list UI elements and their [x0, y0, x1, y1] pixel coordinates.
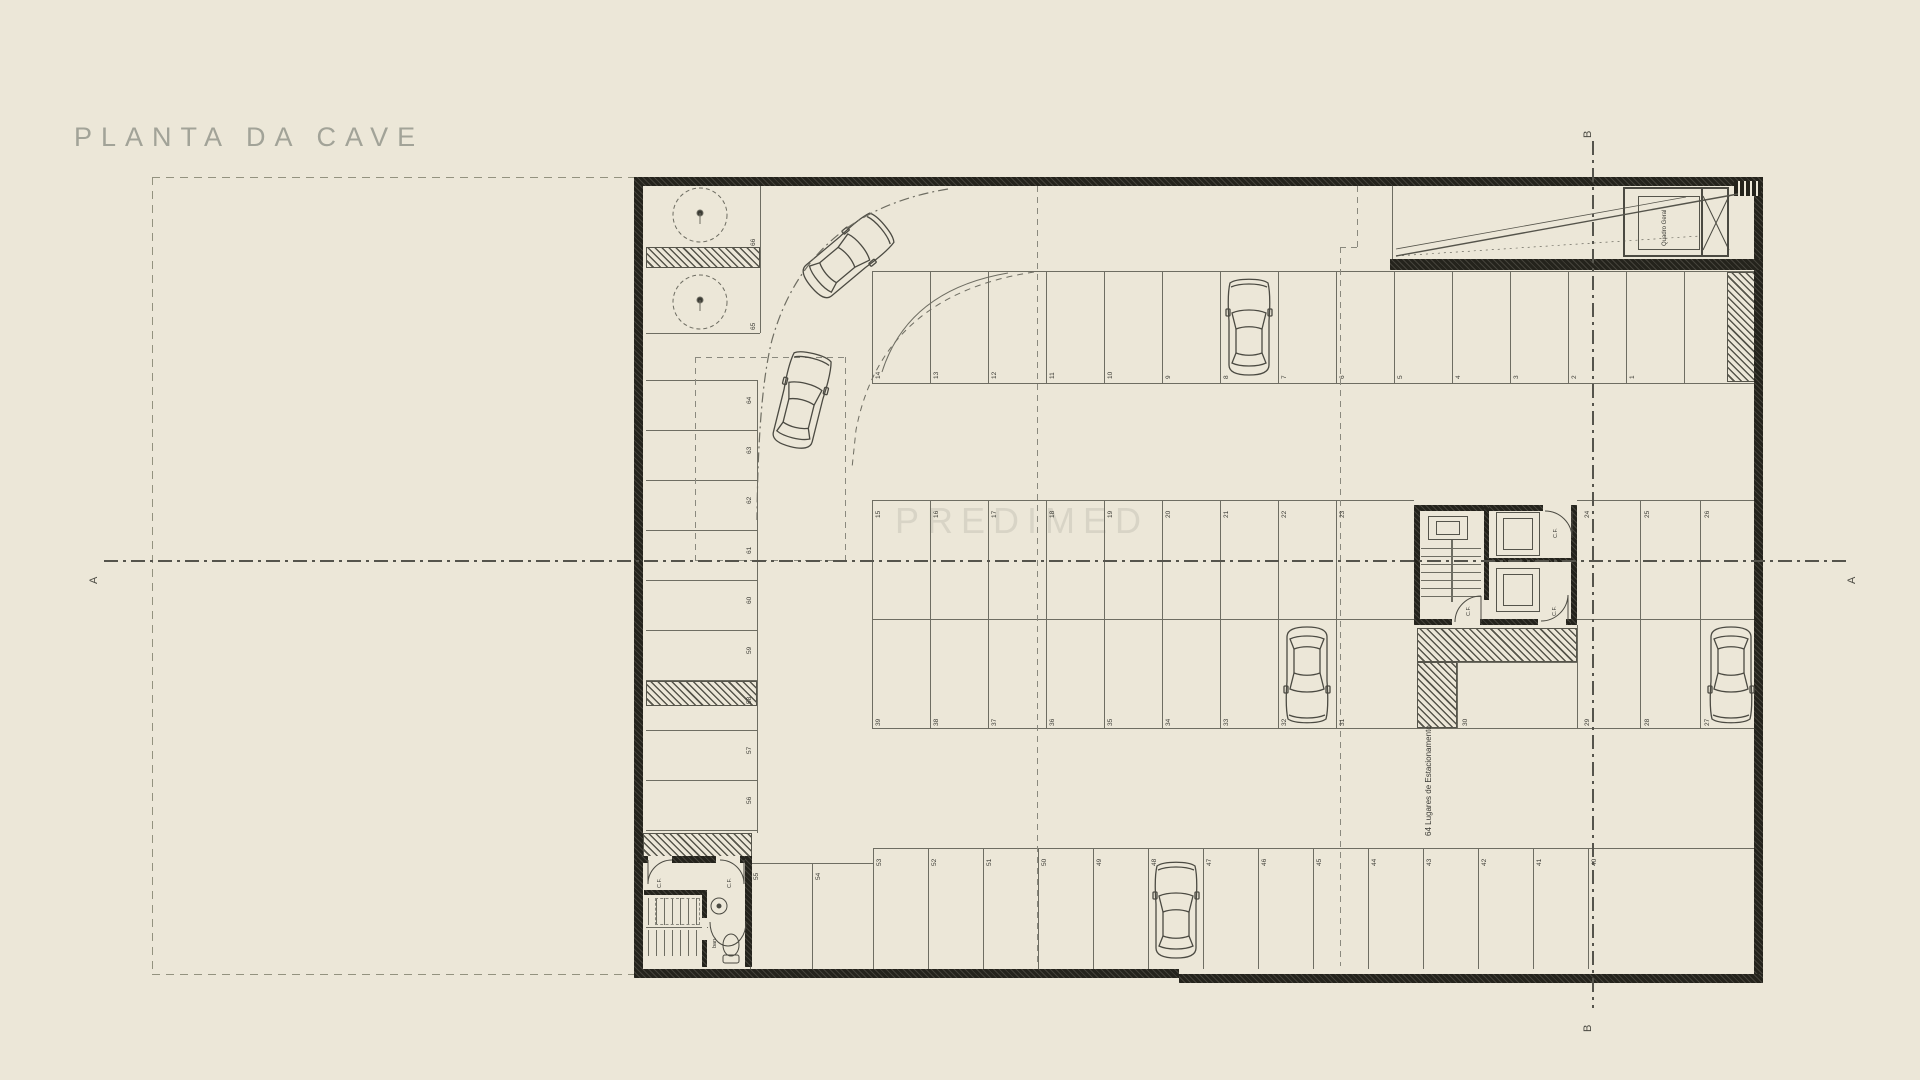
stall-divider [812, 863, 813, 969]
room-stair-tread [664, 930, 665, 956]
parking-stall-number: 50 [1041, 859, 1049, 866]
stall-divider [1038, 848, 1039, 969]
room-stair-tread [648, 930, 649, 956]
section-line-b [1592, 141, 1594, 1008]
bath-label: ban. [712, 937, 719, 948]
parking-stall-number: 59 [746, 647, 754, 654]
parking-stall-number: 46 [1261, 859, 1269, 866]
stall-divider [646, 380, 757, 381]
stall-divider [646, 480, 757, 481]
hatch-strip-stair-room [643, 833, 752, 857]
core-duct [1436, 521, 1460, 535]
fire-door-label: C.F. [727, 878, 734, 888]
stall-divider [1278, 500, 1279, 728]
parking-stall-number: 18 [1049, 511, 1057, 518]
parking-stall-number: 36 [1049, 719, 1057, 726]
parking-stall-number: 25 [1644, 511, 1652, 518]
stall-divider [872, 271, 873, 383]
stall-divider [873, 848, 874, 969]
parking-stall-number: 27 [1704, 719, 1712, 726]
parking-stall-number: 7 [1281, 375, 1289, 379]
entrance-envelope [695, 357, 845, 358]
room-stair-tread [648, 898, 649, 925]
room-stair-tread [656, 930, 657, 956]
core-door-gap [1538, 619, 1566, 625]
stall-divider [1684, 271, 1685, 383]
parking-stall-number: 55 [753, 873, 761, 880]
stall-edge [872, 271, 1757, 272]
stall-divider [1162, 500, 1163, 728]
parking-stall-number: 65 [750, 323, 758, 330]
parking-stall-number: 35 [1107, 719, 1115, 726]
parking-stall-number: 13 [933, 372, 941, 379]
stall-divider [646, 830, 757, 831]
parking-stall-number: 63 [746, 447, 754, 454]
stall-edge [1577, 500, 1763, 501]
stall-divider [1046, 271, 1047, 383]
stall-divider [1258, 848, 1259, 969]
parking-stall-number: 30 [1462, 719, 1470, 726]
room-inner-wall [644, 890, 706, 895]
parking-stall-number: 26 [1704, 511, 1712, 518]
parking-stall-number: 49 [1096, 859, 1104, 866]
room-stair-rail [646, 927, 708, 928]
parking-stall-number: 3 [1513, 375, 1521, 379]
parking-stall-number: 11 [1049, 372, 1057, 379]
elevator-car-inner [1503, 518, 1533, 550]
parking-stall-number: 61 [746, 547, 754, 554]
stall-divider [1568, 271, 1569, 383]
stall-divider [928, 848, 929, 969]
hatch-wedge-top-right [1727, 272, 1757, 382]
parking-stall-number: 28 [1644, 719, 1652, 726]
section-label-a-left: A [88, 577, 100, 584]
parking-stall-number: 12 [991, 372, 999, 379]
hatch-strip-left [646, 681, 757, 706]
ramp-corridor-wall [1390, 259, 1763, 270]
stall-divider [646, 780, 757, 781]
parking-stall-number: 16 [933, 511, 941, 518]
projection-line [1340, 247, 1358, 248]
stall-divider [988, 500, 989, 728]
parking-stall-number: 8 [1223, 375, 1231, 379]
room-stair-tread [688, 930, 689, 956]
stall-divider [1220, 271, 1221, 383]
stall-divider [930, 271, 931, 383]
stall-divider [1313, 848, 1314, 969]
parking-stall-number: 62 [746, 497, 754, 504]
parking-stall-number: 37 [991, 719, 999, 726]
stall-edge [1577, 619, 1763, 620]
hatch-below-core [1417, 662, 1457, 728]
parking-stall-number: 58 [746, 697, 754, 704]
fire-door-label: C.F. [1466, 606, 1473, 616]
stall-divider [1203, 848, 1204, 969]
stall-divider [1148, 848, 1149, 969]
stall-divider [1588, 848, 1589, 969]
stall-divider [1577, 625, 1578, 728]
section-label-b-bottom: B [1582, 1025, 1594, 1032]
parking-stall-number: 24 [1584, 511, 1592, 518]
entrance-envelope [695, 357, 696, 560]
room-door-gap [648, 856, 672, 863]
stall-divider [1093, 848, 1094, 969]
watermark: PREDIMED [895, 500, 1149, 542]
core-wall [1571, 505, 1577, 625]
stall-divider [1640, 500, 1641, 728]
room-door-gap [702, 918, 707, 940]
parking-stall-number: 38 [933, 719, 941, 726]
projection-line [1357, 186, 1358, 247]
stall-divider [1104, 271, 1105, 383]
stall-edge [757, 380, 758, 833]
hatch-below-core [1417, 628, 1577, 662]
parking-stall-number: 33 [1223, 719, 1231, 726]
parking-stall-number: 23 [1339, 511, 1347, 518]
stall-divider [1533, 848, 1534, 969]
stall-divider [646, 333, 760, 334]
parking-stall-number: 32 [1281, 719, 1289, 726]
stall-divider [1046, 500, 1047, 728]
elevator-car-inner [1503, 574, 1533, 606]
parking-stall-number: 19 [1107, 511, 1115, 518]
ramp-corridor-edge [1392, 186, 1393, 259]
parking-stall-number: 10 [1107, 372, 1115, 379]
stall-divider [1700, 500, 1701, 728]
stall-divider [983, 848, 984, 969]
exterior-wall-bottom-right [1179, 974, 1763, 983]
stall-divider [1104, 500, 1105, 728]
room-stair-tread [696, 930, 697, 956]
stall-divider [1368, 848, 1369, 969]
parking-stall-number: 52 [931, 859, 939, 866]
room-wall [745, 856, 752, 967]
stall-edge [872, 383, 1757, 384]
capacity-note: 64 Lugares de Estacionamento [1424, 725, 1433, 836]
stall-divider [646, 730, 757, 731]
parking-stall-number: 64 [746, 397, 754, 404]
exterior-wall-right [1754, 177, 1763, 983]
boundary-line-left [152, 177, 153, 975]
parking-stall-number: 41 [1536, 859, 1544, 866]
stall-edge [872, 500, 1414, 501]
ramp-turning-arcs [757, 189, 1034, 520]
room-stair-tread [672, 930, 673, 956]
parking-stall-number: 43 [1426, 859, 1434, 866]
fire-door-label: C.F. [1553, 528, 1560, 538]
core-stair-rail [1451, 540, 1453, 602]
parking-stall-number: 54 [815, 873, 823, 880]
stall-edge [872, 728, 1763, 729]
page-title: PLANTA DA CAVE [74, 122, 424, 153]
stall-divider [646, 630, 757, 631]
parking-stall-number: 34 [1165, 719, 1173, 726]
stall-divider [1162, 271, 1163, 383]
car-stall-48 [1153, 862, 1199, 958]
room-door-gap [716, 856, 740, 863]
room-stair-dashed [655, 898, 700, 925]
stall-divider [1423, 848, 1424, 969]
parking-stall-number: 20 [1165, 511, 1173, 518]
parking-stall-number: 31 [1339, 719, 1347, 726]
stall-divider [988, 271, 989, 383]
section-line-a [104, 560, 1846, 562]
stall-divider [1510, 271, 1511, 383]
parking-stall-number: 48 [1151, 859, 1159, 866]
fire-door-label: C.F. [1552, 606, 1559, 616]
parking-stall-number: 56 [746, 797, 754, 804]
vent-grille-icon [1734, 181, 1761, 196]
core-inner-wall [1484, 505, 1489, 600]
sink-fixture [711, 898, 727, 914]
parking-stall-number: 14 [875, 372, 883, 379]
parking-stall-number: 1 [1629, 375, 1637, 379]
car-stall-8 [1226, 279, 1272, 375]
parking-stall-number: 44 [1371, 859, 1379, 866]
parking-stall-number: 5 [1397, 375, 1405, 379]
parking-stall-number: 2 [1571, 375, 1579, 379]
stall-divider [646, 430, 757, 431]
fire-door-label: C.F. [657, 878, 664, 888]
projection-line [1340, 247, 1341, 966]
wc-fixture [711, 898, 739, 963]
parking-stall-number: 4 [1455, 375, 1463, 379]
parking-stall-number: 39 [875, 719, 883, 726]
projection-line [1037, 186, 1038, 966]
parking-stall-number: 15 [875, 511, 883, 518]
parking-stall-number: 60 [746, 597, 754, 604]
stall-edge [873, 848, 1763, 849]
electrical-room-panel [1638, 196, 1700, 250]
room-stair-tread [680, 930, 681, 956]
floor-plan: PLANTA DA CAVE PREDIMED A A B B 64 Lugar… [0, 0, 1920, 1080]
stall-divider [930, 500, 931, 728]
section-label-a-right: A [1846, 577, 1858, 584]
stall-divider [872, 500, 873, 728]
stall-divider [1452, 271, 1453, 383]
stall-divider [1336, 500, 1337, 728]
car-ramp-upper [796, 208, 899, 305]
parking-stall-number: 9 [1165, 375, 1173, 379]
parking-stall-number: 53 [876, 859, 884, 866]
boundary-line-bottom [152, 974, 637, 975]
core-door-gap [1543, 505, 1571, 511]
parking-stall-number: 66 [750, 239, 758, 246]
parking-stall-number: 57 [746, 747, 754, 754]
stall-divider [1394, 271, 1395, 383]
stall-edge [872, 619, 1414, 620]
stall-divider [1278, 271, 1279, 383]
boundary-line-top [152, 177, 634, 178]
parking-stall-number: 51 [986, 859, 994, 866]
core-door-gap [1452, 619, 1480, 625]
car-stall-32 [1284, 627, 1330, 723]
electrical-room-label: Quadro Geral [1662, 210, 1669, 246]
entrance-envelope [845, 357, 846, 560]
car-stall-27 [1708, 627, 1754, 723]
car-ramp-lower [768, 348, 836, 452]
hatch-strip-corner [646, 247, 760, 268]
parking-stall-number: 17 [991, 511, 999, 518]
stall-divider [646, 530, 757, 531]
core-wall [1414, 505, 1420, 625]
parking-stall-number: 45 [1316, 859, 1324, 866]
stall-divider [646, 580, 757, 581]
parking-stall-number: 29 [1584, 719, 1592, 726]
stall-divider [1457, 662, 1458, 728]
parking-stall-number: 42 [1481, 859, 1489, 866]
exterior-wall-bottom-left [634, 969, 1179, 978]
stall-divider [1220, 500, 1221, 728]
parking-stall-number: 21 [1223, 511, 1231, 518]
parking-stall-number: 22 [1281, 511, 1289, 518]
section-label-b-top: B [1582, 131, 1594, 138]
parking-stall-number: 47 [1206, 859, 1214, 866]
stall-divider [760, 185, 761, 333]
stall-divider [1478, 848, 1479, 969]
stall-divider [1626, 271, 1627, 383]
stall-divider [1336, 271, 1337, 383]
parking-stall-number: 6 [1339, 375, 1347, 379]
